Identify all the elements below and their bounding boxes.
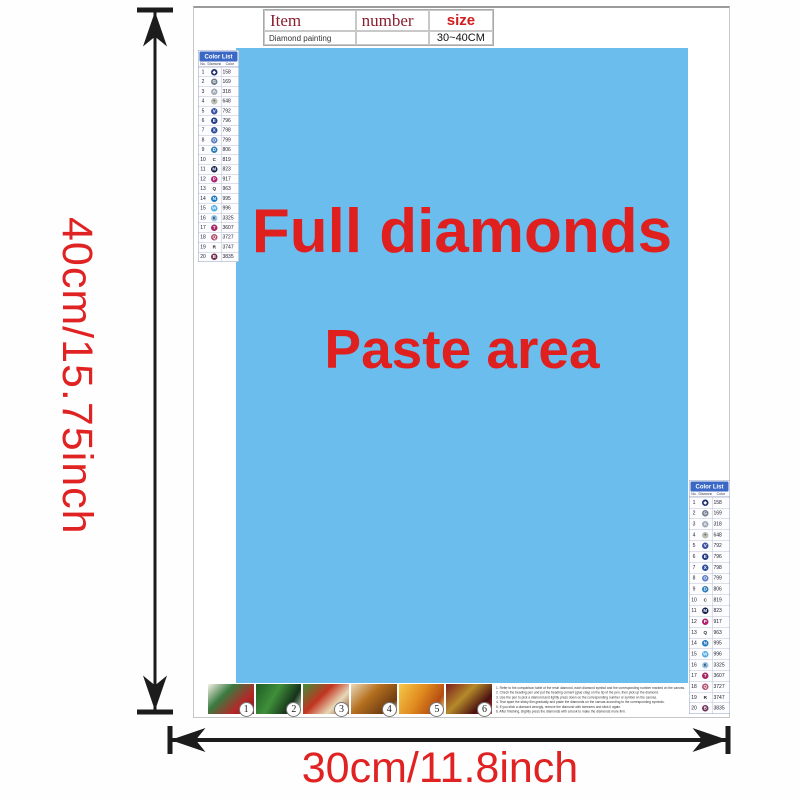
diamond-symbol-icon: D [211, 147, 218, 154]
instruction-line: 6. After finishing, slightly press the d… [496, 710, 727, 715]
color-list-row: 9 D 806 [690, 584, 730, 595]
diamond-symbol-icon: E [702, 554, 709, 561]
col-no-label: No. [690, 493, 699, 497]
color-number: 1 [199, 69, 208, 75]
dmc-color-code: 963 [221, 184, 239, 193]
dmc-color-code: 917 [712, 617, 730, 627]
color-list-row: 1 ◆ 158 [199, 67, 239, 77]
diamond-symbol-icon: O [211, 137, 218, 144]
color-list-row: 16 K 3325 [690, 659, 730, 670]
diamond-symbol-icon: A [702, 521, 709, 528]
dmc-color-code: 798 [221, 126, 239, 135]
dmc-color-code: 799 [221, 136, 239, 145]
diamond-symbol-icon: K [211, 215, 218, 222]
color-list-panel: Color List No. Diamond Color 1 ◆ 158 [689, 480, 730, 714]
color-number: 9 [690, 587, 699, 593]
color-number: 16 [199, 215, 208, 221]
diamond-symbol-icon: P [211, 176, 218, 183]
step-number-badge: 6 [477, 702, 492, 717]
diamond-symbol-icon: Q [211, 234, 218, 241]
color-number: 6 [199, 118, 208, 124]
width-dimension-label: 30cm/11.8inch [160, 744, 720, 793]
dmc-color-code: 3607 [221, 223, 239, 232]
step-thumbnail: 2 [256, 684, 302, 714]
diamond-symbol-icon: K [702, 662, 709, 669]
dmc-color-code: 158 [712, 498, 730, 508]
color-list-row: 6 E 796 [690, 551, 730, 562]
diamond-symbol-icon: X [702, 564, 709, 571]
color-number: 7 [199, 128, 208, 134]
diamond-symbol-icon: T [702, 673, 709, 680]
color-list-rows: 1 ◆ 158 2 G 169 3 A [690, 497, 730, 714]
dmc-color-code: 806 [221, 145, 239, 154]
item-header-cell: Item [264, 10, 356, 31]
color-number: 15 [199, 206, 208, 212]
color-list-row: 10 C 819 [199, 155, 239, 165]
item-table-header-row: Item number size [264, 10, 493, 31]
step-thumbnail: 3 [303, 684, 349, 714]
color-list-row: 11 M 823 [690, 605, 730, 616]
vertical-dimension-arrow [137, 10, 173, 712]
dmc-color-code: 819 [221, 155, 239, 164]
diamond-symbol-icon: V [702, 543, 709, 550]
color-list-row: 8 O 799 [199, 135, 239, 145]
color-list-title: Color List [200, 52, 238, 62]
step-number-badge: 2 [286, 702, 301, 717]
diamond-symbol-icon: W [702, 651, 709, 658]
col-no-label: No. [199, 63, 208, 67]
color-list-row: 1 ◆ 158 [690, 497, 730, 508]
color-list-rows: 1 ◆ 158 2 G 169 3 A [199, 67, 239, 262]
color-list-row: 2 G 169 [199, 77, 239, 87]
color-number: 10 [690, 597, 699, 603]
color-list-row: 13 Q 963 [199, 184, 239, 194]
diamond-symbol-icon: X [211, 127, 218, 134]
size-value-cell: 30~40CM [429, 31, 493, 45]
color-list-row: 10 C 819 [690, 594, 730, 605]
dmc-color-code: 796 [712, 552, 730, 562]
diamond-symbol-icon: + [702, 532, 709, 539]
number-value-cell [356, 31, 429, 45]
diamond-symbol-icon: M [211, 166, 218, 173]
color-list-row: 2 G 169 [690, 508, 730, 519]
dmc-color-code: 3325 [221, 213, 239, 222]
dmc-color-code: 3607 [712, 671, 730, 681]
dmc-color-code: 3325 [712, 660, 730, 670]
step-number-badge: 1 [239, 702, 254, 717]
step-number-badge: 4 [382, 702, 397, 717]
step-thumbnail: 6 [446, 684, 492, 714]
col-diamond-label: Diamond [208, 63, 222, 67]
color-list-row: 6 E 796 [199, 116, 239, 126]
col-color-label: Color [712, 493, 730, 497]
color-list-row: 17 T 3607 [199, 223, 239, 233]
dmc-color-code: 169 [712, 508, 730, 518]
dmc-color-code: 917 [221, 174, 239, 183]
step-thumbnail: 5 [399, 684, 445, 714]
paste-area-title-line1: Full diamonds [252, 196, 672, 267]
diamond-symbol-icon: B [211, 254, 218, 261]
diamond-symbol-icon: Q [702, 629, 709, 636]
dmc-color-code: 318 [221, 87, 239, 96]
color-list-row: 7 X 798 [199, 125, 239, 135]
diamond-symbol-icon: ◆ [211, 69, 218, 76]
color-list-title: Color List [691, 482, 729, 492]
dmc-color-code: 806 [712, 584, 730, 594]
dmc-color-code: 3835 [221, 252, 239, 261]
color-number: 19 [199, 244, 208, 250]
dmc-color-code: 792 [221, 106, 239, 115]
dmc-color-code: 819 [712, 595, 730, 605]
canvas-poster: Item number size Diamond painting 30~40C… [193, 6, 730, 718]
dmc-color-code: 792 [712, 541, 730, 551]
color-number: 16 [690, 662, 699, 668]
color-number: 14 [690, 641, 699, 647]
color-list-row: 8 O 799 [690, 573, 730, 584]
color-number: 3 [199, 89, 208, 95]
color-number: 7 [690, 565, 699, 571]
color-list-left: Color List No. Diamond Color 1 ◆ 158 [198, 50, 239, 262]
color-list-row: 12 P 917 [199, 174, 239, 184]
color-list-row: 3 A 318 [199, 86, 239, 96]
dmc-color-code: 823 [221, 165, 239, 174]
color-number: 6 [690, 554, 699, 560]
color-number: 14 [199, 196, 208, 202]
dmc-color-code: 799 [712, 573, 730, 583]
color-number: 17 [690, 673, 699, 679]
color-number: 8 [690, 576, 699, 582]
diamond-symbol-icon: T [211, 224, 218, 231]
color-list-row: 14 N 995 [199, 193, 239, 203]
product-image: 40cm/15.75inch Item number size Diamond … [0, 0, 800, 800]
item-table-data-row: Diamond painting 30~40CM [264, 31, 493, 45]
color-number: 4 [690, 532, 699, 538]
dmc-color-code: 996 [712, 649, 730, 659]
number-header-cell: number [356, 10, 429, 31]
instruction-lines: 1. Refer to the comparison table of the … [496, 686, 727, 714]
color-list-row: 15 W 996 [199, 203, 239, 213]
col-diamond-label: Diamond [699, 493, 713, 497]
color-number: 10 [199, 157, 208, 163]
color-list-row: 15 W 996 [690, 649, 730, 660]
size-header-cell: size [429, 10, 493, 31]
color-number: 13 [199, 186, 208, 192]
diamond-symbol-icon: ◆ [702, 499, 709, 506]
diamond-symbol-icon: N [211, 195, 218, 202]
step-thumbnail: 1 [208, 684, 254, 714]
color-number: 1 [690, 500, 699, 506]
color-list-row: 19 R 3747 [199, 242, 239, 252]
paste-area-title-line2: Paste area [324, 317, 599, 381]
color-list-row: 13 Q 963 [690, 627, 730, 638]
dmc-color-code: 796 [221, 116, 239, 125]
diamond-symbol-icon: N [702, 640, 709, 647]
color-list-row: 11 M 823 [199, 164, 239, 174]
dmc-color-code: 995 [712, 638, 730, 648]
instruction-text: 1. Refer to the comparison table of the … [496, 686, 727, 716]
diamond-symbol-icon: Q [211, 186, 218, 193]
diamond-symbol-icon: G [211, 79, 218, 86]
diamond-symbol-icon: O [702, 575, 709, 582]
color-list-row: 7 X 798 [690, 562, 730, 573]
dmc-color-code: 3747 [221, 243, 239, 252]
diamond-symbol-icon: R [211, 244, 218, 251]
diamond-symbol-icon: G [702, 510, 709, 517]
item-table: Item number size Diamond painting 30~40C… [263, 9, 494, 46]
color-list-row: 4 + 648 [690, 529, 730, 540]
color-number: 20 [199, 254, 208, 260]
dmc-color-code: 996 [221, 204, 239, 213]
color-number: 2 [199, 79, 208, 85]
color-list-row: 5 V 792 [690, 540, 730, 551]
color-list-row: 3 A 318 [690, 519, 730, 530]
diamond-symbol-icon: D [702, 586, 709, 593]
diamond-symbol-icon: C [211, 156, 218, 163]
height-dimension-label: 40cm/15.75inch [52, 200, 101, 552]
color-number: 5 [690, 543, 699, 549]
color-list-row: 12 P 917 [690, 616, 730, 627]
color-number: 15 [690, 652, 699, 658]
color-number: 9 [199, 147, 208, 153]
dmc-color-code: 963 [712, 627, 730, 637]
diamond-symbol-icon: A [211, 88, 218, 95]
color-number: 11 [690, 608, 699, 614]
color-number: 18 [199, 235, 208, 241]
color-list-row: 18 Q 3727 [199, 232, 239, 242]
dmc-color-code: 3727 [221, 233, 239, 242]
color-list-row: 14 N 995 [690, 638, 730, 649]
dmc-color-code: 158 [221, 68, 239, 77]
col-color-label: Color [221, 63, 239, 67]
step-thumbnails: 1 2 3 4 5 [208, 684, 492, 714]
diamond-symbol-icon: + [211, 98, 218, 105]
diamond-symbol-icon: M [702, 608, 709, 615]
dmc-color-code: 823 [712, 606, 730, 616]
dmc-color-code: 995 [221, 194, 239, 203]
color-number: 4 [199, 99, 208, 105]
color-list-row: 4 + 648 [199, 96, 239, 106]
color-number: 5 [199, 108, 208, 114]
color-number: 3 [690, 522, 699, 528]
color-list-row: 17 T 3607 [690, 670, 730, 681]
dmc-color-code: 648 [221, 97, 239, 106]
paste-area: Full diamonds Paste area [236, 48, 688, 683]
diamond-symbol-icon: P [702, 619, 709, 626]
step-number-badge: 3 [334, 702, 349, 717]
color-list-row: 5 V 792 [199, 106, 239, 116]
color-number: 13 [690, 630, 699, 636]
dmc-color-code: 798 [712, 562, 730, 572]
color-number: 12 [690, 619, 699, 625]
color-number: 17 [199, 225, 208, 231]
diamond-symbol-icon: C [702, 597, 709, 604]
color-list-row: 16 K 3325 [199, 213, 239, 223]
dmc-color-code: 318 [712, 519, 730, 529]
color-list-panel: Color List No. Diamond Color 1 ◆ 158 [198, 50, 239, 262]
diamond-symbol-icon: E [211, 117, 218, 124]
diamond-symbol-icon: V [211, 108, 218, 115]
color-number: 8 [199, 137, 208, 143]
color-list-right: Color List No. Diamond Color 1 ◆ 158 [689, 480, 730, 714]
step-thumbnail: 4 [351, 684, 397, 714]
color-number: 12 [199, 176, 208, 182]
color-list-row: 20 B 3835 [199, 252, 239, 262]
color-number: 2 [690, 511, 699, 517]
item-value-cell: Diamond painting [264, 31, 356, 45]
step-number-badge: 5 [429, 702, 444, 717]
dmc-color-code: 648 [712, 530, 730, 540]
color-list-row: 9 D 806 [199, 145, 239, 155]
color-number: 11 [199, 167, 208, 173]
diamond-symbol-icon: W [211, 205, 218, 212]
dmc-color-code: 169 [221, 77, 239, 86]
